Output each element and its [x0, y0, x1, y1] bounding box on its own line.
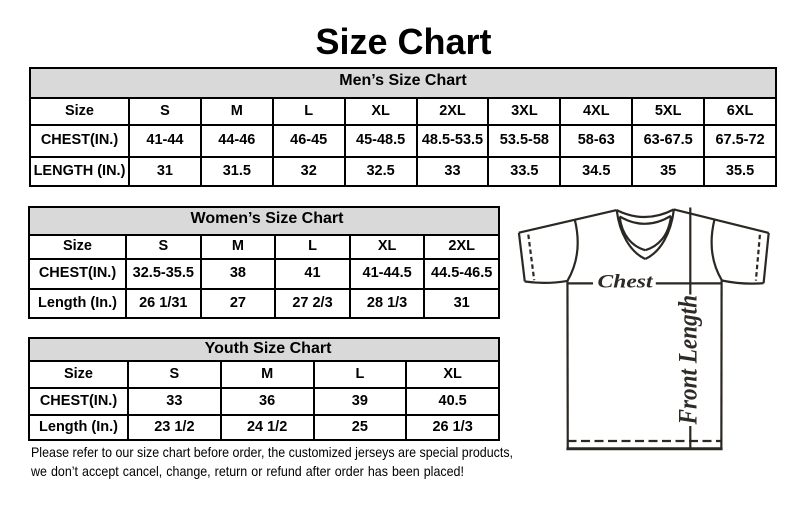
svg-text:Front Length: Front Length [673, 295, 702, 425]
svg-text:Chest: Chest [598, 272, 654, 293]
